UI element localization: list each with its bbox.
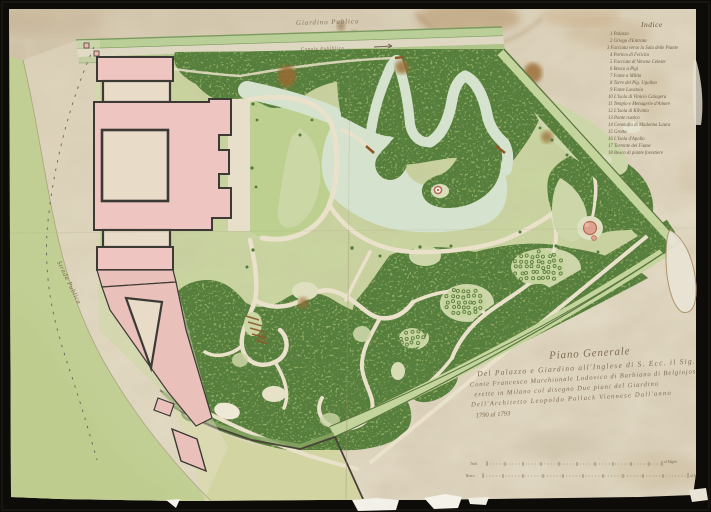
- svg-text:16 L'Isola d'Apollo: 16 L'Isola d'Apollo: [608, 137, 645, 142]
- svg-text:9 Fonte Lavatoia: 9 Fonte Lavatoia: [610, 88, 644, 93]
- svg-text:1 Palazzo: 1 Palazzo: [610, 32, 629, 37]
- svg-text:Indice: Indice: [640, 20, 663, 29]
- svg-text:al Miglio: al Miglio: [664, 460, 677, 464]
- svg-text:12 L'Isola di Kilvinio: 12 L'Isola di Kilvinio: [608, 109, 649, 114]
- svg-text:4 Portico di Felicita: 4 Portico di Felicita: [610, 53, 650, 58]
- svg-text:10 L'Isola di Vinicio Calogera: 10 L'Isola di Vinicio Calogera: [608, 95, 667, 100]
- svg-text:Bracc.: Bracc.: [466, 474, 476, 478]
- svg-text:14 Cenotafio di Madonna Laura: 14 Cenotafio di Madonna Laura: [608, 123, 671, 128]
- svg-text:11 Tempio e Menagerie d'Amore: 11 Tempio e Menagerie d'Amore: [608, 102, 671, 107]
- svg-text:2 Griego d'Entrata: 2 Griego d'Entrata: [610, 39, 647, 44]
- svg-text:15 Grotta: 15 Grotta: [608, 130, 627, 135]
- svg-text:8 Torre del Pig. Ugolino: 8 Torre del Pig. Ugolino: [610, 81, 658, 86]
- svg-text:3 Facciata verso la Sala delle: 3 Facciata verso la Sala delle Piante: [607, 46, 679, 51]
- svg-text:Trab.: Trab.: [470, 462, 478, 466]
- svg-text:13 Ponte rustico: 13 Ponte rustico: [608, 116, 640, 121]
- svg-text:17 Torrente del Fiume: 17 Torrente del Fiume: [608, 144, 652, 149]
- svg-text:7 Fonte a Milita: 7 Fonte a Milita: [610, 74, 642, 79]
- svg-text:5 Facciata di Verano Celeste: 5 Facciata di Verano Celeste: [610, 60, 667, 65]
- svg-text:18 Bosco di piante forestiere: 18 Bosco di piante forestiere: [608, 151, 664, 156]
- svg-text:6 Bosco a Pigi: 6 Bosco a Pigi: [610, 67, 639, 72]
